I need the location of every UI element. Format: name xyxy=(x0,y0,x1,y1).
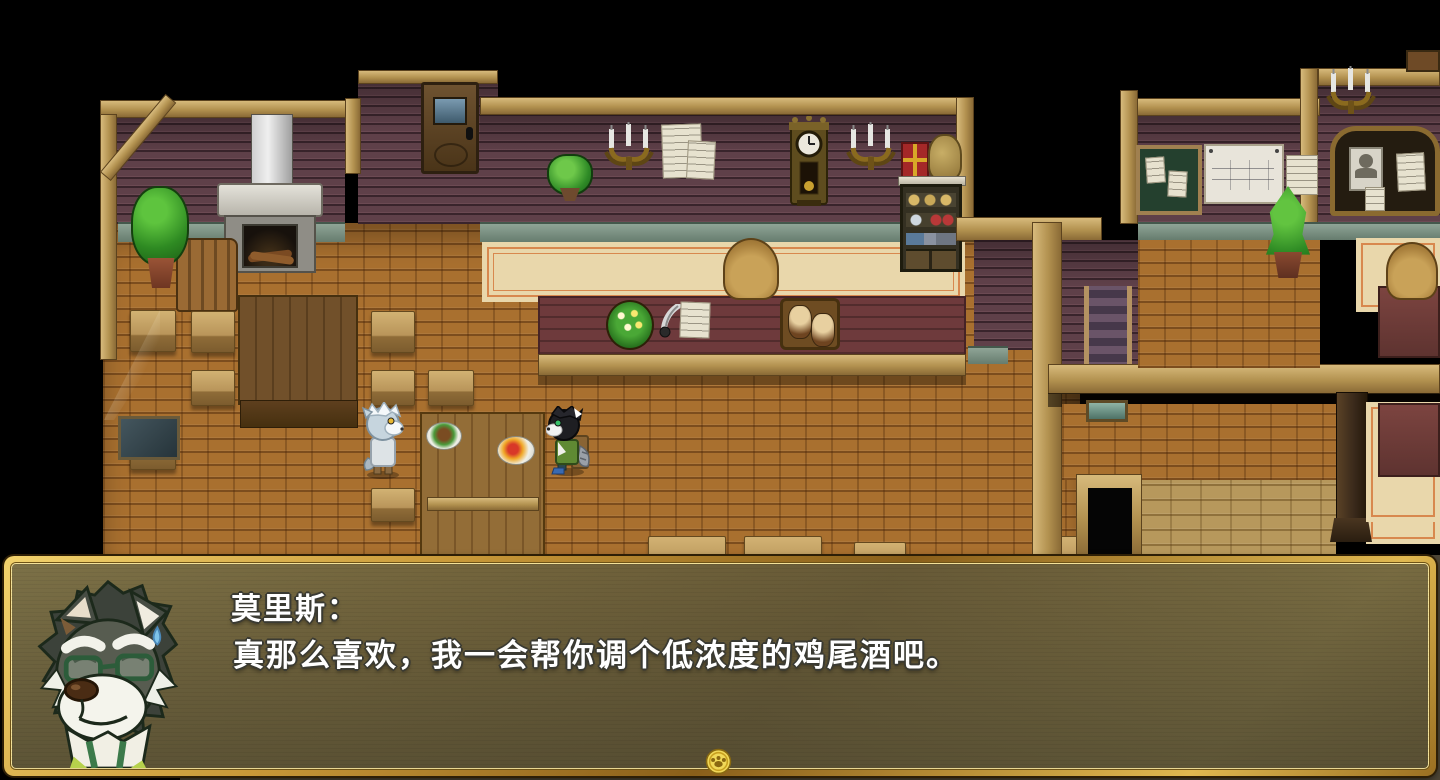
corridor-window xyxy=(1086,400,1128,422)
staircase xyxy=(1084,286,1132,370)
door[interactable] xyxy=(421,82,479,174)
corridor-top-beam xyxy=(956,217,1102,241)
doorway-opening[interactable] xyxy=(1088,488,1132,558)
cabinet-drawers xyxy=(906,249,956,269)
portrait-poster xyxy=(1349,147,1383,191)
pinned-paper xyxy=(1365,187,1385,211)
speaker-portrait-wolf xyxy=(32,578,184,768)
table xyxy=(371,488,415,522)
gift-box xyxy=(901,142,929,178)
green-bulletin-board[interactable] xyxy=(1136,145,1202,215)
food-plate-fruit xyxy=(497,436,535,465)
candelabra-icon xyxy=(602,122,656,176)
cabinet-shelf-linens xyxy=(906,233,956,245)
table xyxy=(371,311,415,353)
white-wolf-npc[interactable] xyxy=(362,402,404,480)
captain-chair xyxy=(1386,242,1438,300)
cabinet-shelf-dishes xyxy=(906,193,956,207)
black-wolf-npc[interactable] xyxy=(546,406,592,476)
counter-shadow xyxy=(538,376,966,385)
grain-sack xyxy=(928,134,962,180)
fireplace-mantel xyxy=(217,183,323,217)
table xyxy=(371,370,415,406)
bar-counter-top xyxy=(538,296,966,356)
flower-basket xyxy=(606,300,654,350)
dish-cabinet xyxy=(900,184,962,272)
pin-icon xyxy=(1209,149,1213,153)
pinned-paper xyxy=(1145,156,1166,183)
poster-bust-shoulders xyxy=(1355,168,1377,178)
large-plank-table-front xyxy=(240,400,358,428)
door-window xyxy=(433,97,467,125)
dining-table-front-board xyxy=(427,497,539,511)
candelabra-icon xyxy=(844,122,898,176)
bar-counter-front xyxy=(538,354,966,376)
door-carving xyxy=(434,143,468,167)
potted-tree xyxy=(131,186,189,266)
gift-ribbon xyxy=(903,158,927,162)
food-plate-salad xyxy=(426,422,462,450)
continue-paw-coin-icon[interactable] xyxy=(705,748,732,775)
table xyxy=(428,370,474,406)
pin-icon xyxy=(1275,149,1279,153)
bread-loaf xyxy=(788,305,812,339)
bread-loaf xyxy=(811,313,835,347)
wall-divider-beam xyxy=(345,98,361,174)
wall-notice-small xyxy=(686,140,716,179)
alcove-wall xyxy=(974,240,1032,350)
wanted-board[interactable] xyxy=(1330,126,1440,216)
pinned-paper xyxy=(1167,171,1187,198)
baseboard-mid xyxy=(480,222,966,242)
table xyxy=(191,311,235,353)
small-note xyxy=(1286,155,1318,195)
wooden-crate xyxy=(1406,50,1440,72)
dark-pillar xyxy=(1336,392,1368,526)
alcove-baseboard xyxy=(968,346,1008,364)
speaker-name: 莫里斯： xyxy=(231,584,359,628)
mid-wall-top-beam xyxy=(480,97,966,115)
ledger-paper xyxy=(679,301,710,338)
left-wall-top-beam xyxy=(100,100,348,118)
grandfather-clock xyxy=(789,116,829,210)
left-edge-beam xyxy=(100,114,117,360)
table xyxy=(191,370,235,406)
walkway-beam xyxy=(1048,364,1440,394)
right-room-top-beam-left xyxy=(1120,98,1320,116)
corner-window xyxy=(118,416,180,460)
door-handle-icon xyxy=(466,127,473,140)
bread-basket xyxy=(780,298,840,350)
pinned-paper xyxy=(1396,152,1426,191)
firewood-pile xyxy=(176,238,238,312)
red-table xyxy=(1378,403,1440,477)
cabinet-shelf-cups xyxy=(906,213,956,227)
game-viewport[interactable]: 莫里斯： 真那么喜欢，我一会帮你调个低浓度的鸡尾酒吧。 xyxy=(0,0,1440,780)
chart-poster xyxy=(1204,144,1284,204)
captain-chair xyxy=(723,238,779,300)
right-room-divider-beam xyxy=(1300,68,1318,224)
large-plank-table xyxy=(238,295,358,405)
dialogue-text: 真那么喜欢，我一会帮你调个低浓度的鸡尾酒吧。 xyxy=(233,630,959,675)
poster-bust xyxy=(1359,154,1373,168)
candelabra-icon xyxy=(1324,66,1378,120)
